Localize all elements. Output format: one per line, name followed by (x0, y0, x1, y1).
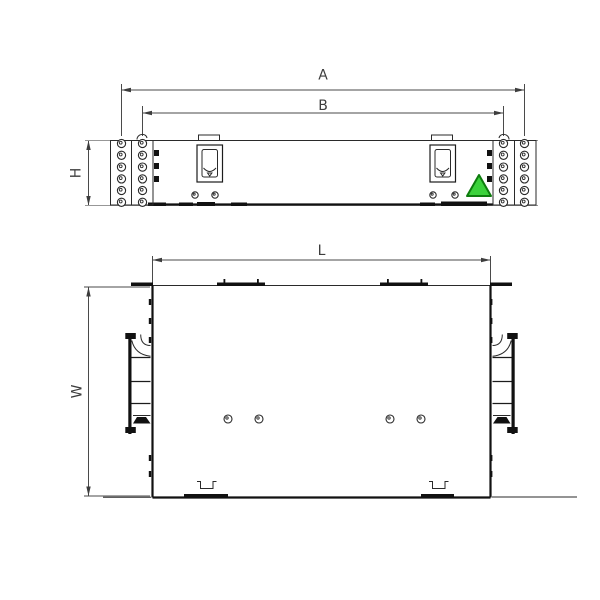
latch-left-top-tab (199, 135, 220, 141)
dim-b-label: B (318, 98, 328, 114)
side-rail-left (125, 333, 150, 434)
bottom-bracket-left (197, 482, 217, 489)
dim-l-label: L (318, 243, 326, 259)
plan-view: L W (70, 243, 578, 498)
technical-drawing: A B H (0, 0, 600, 600)
front-screws (192, 192, 458, 198)
dim-a-label: A (318, 68, 328, 84)
plan-top-hinges (131, 279, 512, 286)
side-rail-right (493, 333, 518, 434)
dim-w-label: W (70, 384, 86, 398)
plan-screws (224, 415, 425, 423)
foot-right (493, 417, 511, 424)
drawing-canvas: A B H (0, 0, 600, 600)
dimension-w: W (70, 287, 151, 496)
hook-right (493, 335, 503, 346)
dimension-l: L (153, 243, 491, 283)
plan-bottom-features (103, 482, 577, 499)
spring-arc-right (493, 341, 512, 357)
dimension-b: B (143, 98, 504, 136)
bottom-bracket-right (429, 482, 449, 489)
dim-h-label: H (69, 168, 85, 179)
spring-arc-left (132, 341, 151, 357)
latch-left (197, 135, 223, 182)
plan-box (153, 286, 491, 498)
front-view: A B H (69, 68, 539, 207)
foot-left (133, 417, 151, 424)
latch-right (430, 135, 456, 182)
latch-right-top-tab (432, 135, 453, 141)
plan-edge-ticks (149, 299, 493, 477)
dimension-h: H (69, 141, 91, 206)
